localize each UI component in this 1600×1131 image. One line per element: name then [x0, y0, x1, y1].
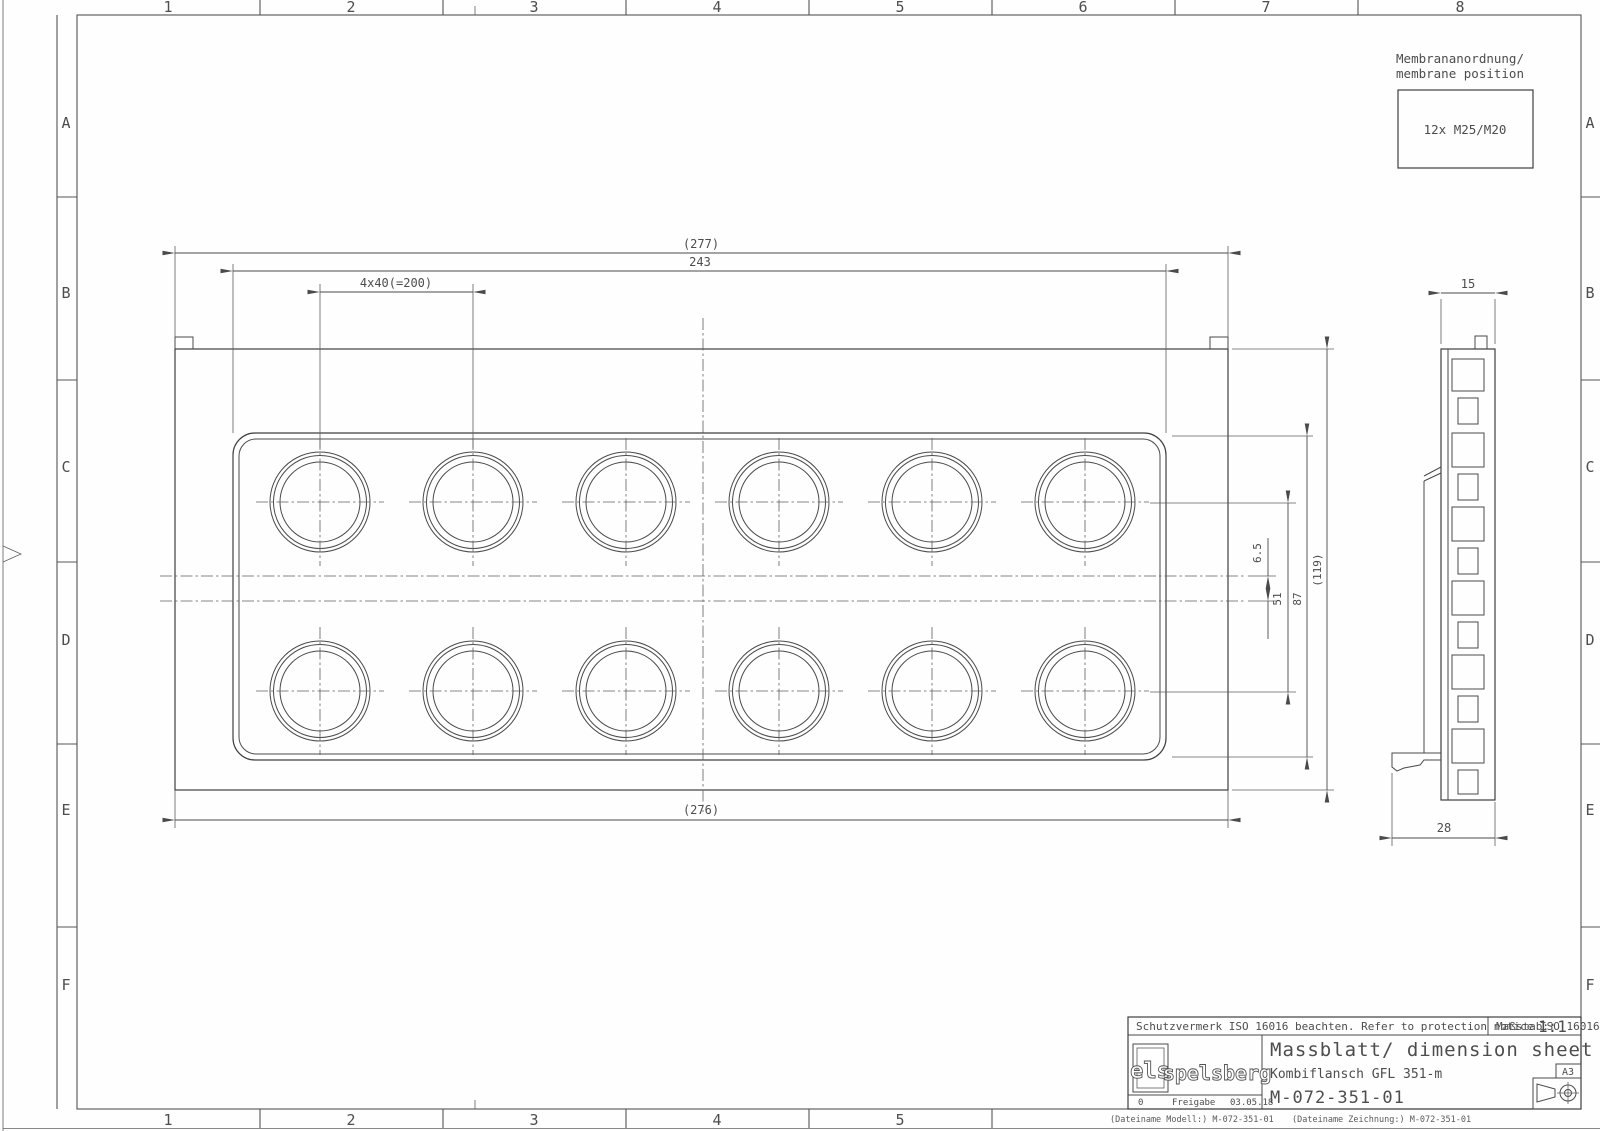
dim-label-pitch: 4x40(=200)	[360, 276, 432, 290]
flange-plate-outline	[175, 349, 1228, 790]
dim-label-277: (277)	[683, 237, 719, 251]
grid-col-label: 6	[1078, 0, 1087, 16]
grid-col-label: 8	[1455, 0, 1464, 16]
dim-label-87: 87	[1291, 592, 1304, 605]
grid-col-label: 5	[895, 1111, 904, 1129]
grid-col-label: 7	[1261, 0, 1270, 16]
drawing-number: M-072-351-01	[1270, 1088, 1405, 1108]
grid-ticks-top	[260, 0, 1358, 15]
grid-col-label: 3	[529, 1111, 538, 1129]
dimension-center-offset: 6.5	[1251, 538, 1268, 639]
dim-label-119: (119)	[1311, 553, 1324, 586]
side-nipples	[1452, 359, 1484, 794]
grid-row-label: C	[61, 458, 70, 476]
grid-row-label: E	[61, 801, 70, 819]
dimension-overall-height: (119)	[1311, 349, 1327, 790]
note-line-1: Membrananordnung/	[1396, 51, 1524, 66]
inner-frame	[77, 15, 1581, 1109]
part-name: Kombiflansch GFL 351-m	[1270, 1067, 1442, 1082]
format-label: A3	[1562, 1067, 1574, 1078]
grid-row-label: F	[61, 976, 70, 994]
grid-row-label: D	[1585, 631, 1594, 649]
membrane-grid	[256, 438, 1149, 755]
sheet-frame: 1 2 3 4 5 6 7 8 1 2 3 4 5 A B C D E F A	[3, 0, 1600, 1131]
note-box-label: 12x M25/M20	[1424, 122, 1507, 137]
side-flange	[1392, 467, 1441, 771]
side-tab	[1475, 336, 1487, 349]
grid-col-label: 4	[712, 1111, 721, 1129]
dim-label-276: (276)	[683, 803, 719, 817]
projection-cone-icon	[1537, 1084, 1555, 1102]
grid-row-label: B	[1585, 284, 1594, 302]
dimension-pitch: 4x40(=200)	[320, 276, 473, 448]
centering-mark	[3, 546, 21, 562]
revision-index: 0	[1138, 1098, 1143, 1108]
grid-row-label: C	[1585, 458, 1594, 476]
plate-tab-left	[175, 337, 193, 349]
dim-label-28: 28	[1437, 821, 1451, 835]
grid-columns-bottom: 1 2 3 4 5	[163, 1111, 904, 1129]
grid-rows-right: A B C D E F	[1585, 114, 1594, 994]
main-view	[160, 318, 1245, 812]
grid-col-label: 2	[346, 1111, 355, 1129]
grid-col-label: 4	[712, 0, 721, 16]
grid-row-label: A	[61, 114, 70, 132]
grid-col-label: 1	[163, 0, 172, 16]
dimension-bottom-width: (276)	[175, 790, 1228, 828]
dim-label-15: 15	[1461, 277, 1475, 291]
grid-col-label: 2	[346, 0, 355, 16]
drawing-sheet: 1 2 3 4 5 6 7 8 1 2 3 4 5 A B C D E F A	[0, 0, 1600, 1131]
membrane-field-outer	[233, 433, 1166, 760]
dim-label-51: 51	[1271, 592, 1284, 605]
release-label: Freigabe	[1172, 1098, 1215, 1108]
grid-row-label: D	[61, 631, 70, 649]
file-model: (Dateiname Modell:) M-072-351-01	[1110, 1115, 1274, 1125]
side-view: 15 28	[1392, 277, 1495, 846]
file-drawing: (Dateiname Zeichnung:) M-072-351-01	[1292, 1115, 1471, 1125]
membrane-field-inner	[239, 439, 1160, 754]
membrane-note: Membrananordnung/ membrane position 12x …	[1396, 51, 1533, 168]
grid-row-label: A	[1585, 114, 1594, 132]
dim-label-6-5: 6.5	[1251, 543, 1264, 563]
grid-rows-left: A B C D E F	[61, 114, 70, 994]
projection-symbol	[1533, 1078, 1581, 1109]
grid-ticks-bottom	[260, 1100, 992, 1128]
dimension-overall-width: (277)	[175, 237, 1228, 337]
logo-name: spelsberg	[1163, 1061, 1271, 1085]
grid-columns-top: 1 2 3 4 5 6 7 8	[163, 0, 1464, 16]
note-line-2: membrane position	[1396, 66, 1524, 81]
dim-label-243: 243	[689, 255, 711, 269]
grid-col-label: 3	[529, 0, 538, 16]
grid-row-label: E	[1585, 801, 1594, 819]
dimension-field-height: 87	[1291, 436, 1307, 757]
dimension-side-total-depth: 28	[1392, 773, 1495, 846]
grid-row-label: B	[61, 284, 70, 302]
spelsberg-logo: els spelsberg	[1130, 1044, 1271, 1092]
plate-tab-right	[1210, 337, 1228, 349]
document-title: Massblatt/ dimension sheet	[1270, 1039, 1593, 1061]
grid-col-label: 1	[163, 1111, 172, 1129]
grid-col-label: 5	[895, 0, 904, 16]
title-block: Schutzvermerk ISO 16016 beachten. Refer …	[1110, 1017, 1600, 1125]
dimension-row-spacing: 51	[1271, 503, 1288, 692]
grid-row-label: F	[1585, 976, 1594, 994]
dimension-right-extensions	[1150, 349, 1334, 790]
release-date: 03.05.18	[1230, 1098, 1273, 1108]
scale-value: 1:1	[1538, 1017, 1567, 1036]
dimension-side-depth: 15	[1441, 277, 1495, 344]
